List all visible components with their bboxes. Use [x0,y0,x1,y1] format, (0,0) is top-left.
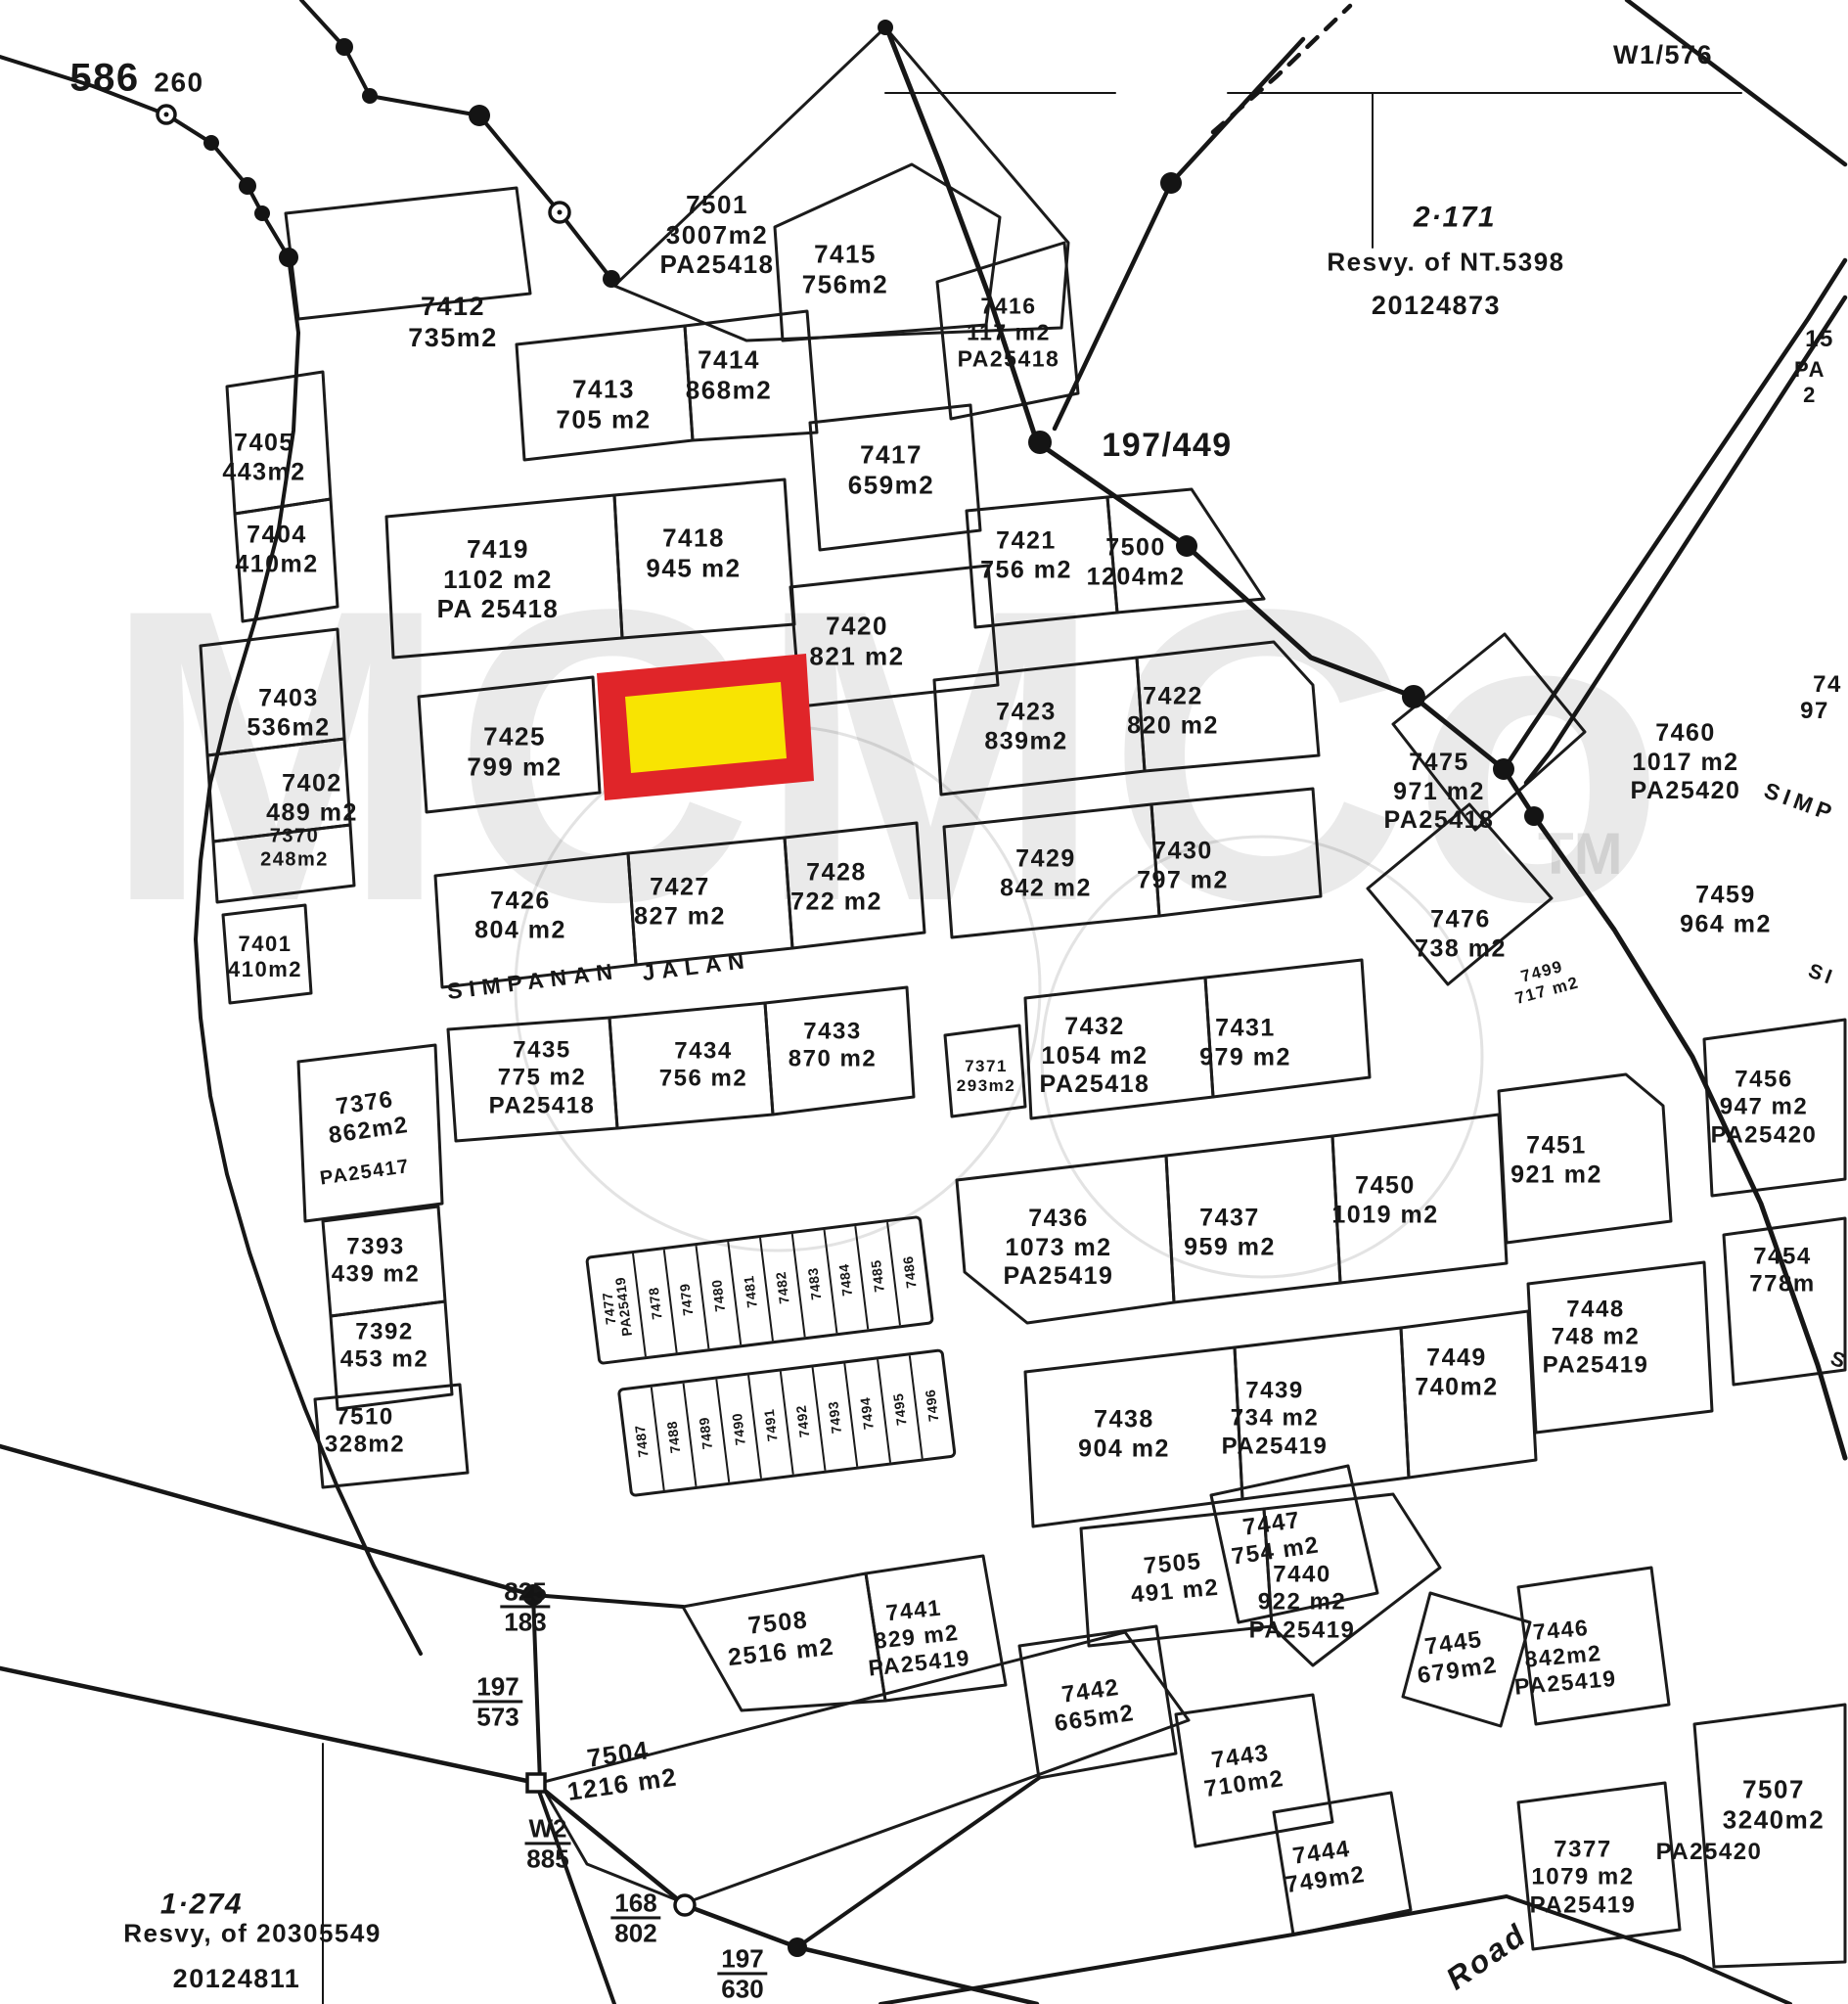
lot-7412: 7412 735m2 [408,292,498,354]
resvy2-area: 1·274 [160,1887,243,1921]
partial-pa2: PA 2 [1791,357,1829,408]
lot-7450: 7450 1019 m2 [1331,1172,1438,1230]
lot-7510: 7510 328m2 [325,1404,405,1460]
lot-7426: 7426 804 m2 [474,888,566,945]
lot-7418: 7418 945 m2 [646,523,741,582]
highlight-inner [625,682,787,773]
lot-7444: 7444 749m2 [1280,1834,1367,1900]
resvy-area: 2·171 [1414,200,1496,234]
lot-7414: 7414 868m2 [686,344,772,404]
strip-lot-block: 7477 PA254197478747974807481748274837484… [585,1215,951,1499]
lot-7429: 7429 842 m2 [1000,845,1092,903]
lot-7441: 7441 829 m2 PA25419 [862,1592,972,1682]
lot-7371: 7371 293m2 [957,1057,1015,1096]
lot-7370: 7370 248m2 [260,825,329,871]
lot-7460: 7460 1017 m2 PA25420 [1631,719,1741,806]
lot-7403: 7403 536m2 [247,685,330,743]
lot-7501: 7501 3007m2 PA25418 [660,190,775,280]
lot-7433: 7433 870 m2 [789,1019,877,1074]
lot-7437: 7437 959 m2 [1184,1205,1276,1262]
lot-7446: 7446 842m2 PA25419 [1509,1613,1617,1701]
lot-7427: 7427 827 m2 [634,874,726,932]
lot-7449: 7449 740m2 [1415,1344,1498,1402]
lot-7404: 7404 410m2 [235,522,318,579]
lot-7415: 7415 756m2 [802,239,888,298]
lot-7434: 7434 756 m2 [659,1038,747,1094]
lot-7439: 7439 734 m2 PA25419 [1222,1378,1329,1461]
lot-7376: 7376 862m2 [323,1084,410,1151]
lot-7432: 7432 1054 m2 PA25418 [1040,1013,1150,1100]
partial-74: 74 [1813,671,1842,699]
lot-7377: 7377 1079 m2 PA25419 [1530,1837,1637,1920]
lot-7454: 7454 778m [1749,1244,1815,1299]
ref-197-630: 197630 [717,1944,767,2002]
cadastral-map: MCMCo TM [0,0,1848,2004]
lot-7392: 7392 453 m2 [340,1319,428,1375]
lot-7401: 7401 410m2 [228,932,302,982]
lot-7428: 7428 722 m2 [790,859,882,917]
lot-7476: 7476 738 m2 [1415,906,1507,964]
lot-7422: 7422 820 m2 [1127,683,1219,741]
lot-7430: 7430 797 m2 [1137,838,1229,895]
lot-7393: 7393 439 m2 [332,1234,420,1290]
lot-7445: 7445 679m2 [1412,1624,1499,1691]
lot-7421: 7421 756 m2 [980,527,1072,585]
resvy2-num: 20124811 [173,1964,301,1995]
map-linework [0,0,1848,2004]
ref-825-183: 825183 [500,1577,550,1635]
lot-7443: 7443 710m2 [1198,1738,1285,1804]
lot-7442: 7442 665m2 [1049,1672,1136,1739]
lot-7402: 7402 489 m2 [266,770,358,828]
ref-197-449: 197/449 [1102,426,1232,465]
resvy-num: 20124873 [1372,291,1501,322]
lot-7431: 7431 979 m2 [1199,1015,1291,1072]
lot-7507-pa: PA25420 [1656,1839,1763,1866]
lot-7505: 7505 491 m2 [1128,1547,1221,1610]
resvy-line: Resvy. of NT.5398 [1327,248,1564,278]
lot-7425: 7425 799 m2 [467,721,562,781]
lot-7420: 7420 821 m2 [809,611,904,670]
lot-7500: 7500 1204m2 [1087,534,1186,592]
lot-7405: 7405 443m2 [222,430,305,487]
lot-7459: 7459 964 m2 [1680,882,1772,939]
ref-168-802: 168802 [610,1889,660,1946]
ref-586: 586 [69,55,139,101]
lot-7416: 7416 117 m2 PA25418 [958,293,1060,372]
lot-7456: 7456 947 m2 PA25420 [1711,1067,1818,1150]
lot-7507: 7507 3240m2 [1723,1774,1825,1834]
lot-7451: 7451 921 m2 [1510,1132,1602,1190]
lot-7435: 7435 775 m2 PA25418 [489,1037,596,1120]
lot-7419: 7419 1102 m2 PA 25418 [437,534,560,624]
lot-7448: 7448 748 m2 PA25419 [1543,1297,1649,1380]
partial-97: 97 [1800,698,1829,725]
lot-7440: 7440 922 m2 PA25419 [1249,1562,1356,1645]
resvy2-line: Resvy, of 20305549 [123,1919,382,1949]
lot-7508: 7508 2516 m2 [724,1604,836,1672]
lot-7417: 7417 659m2 [848,439,934,499]
ref-w1-576: W1/576 [1613,40,1713,71]
highlighted-lot [597,654,814,800]
lot-7475: 7475 971 m2 PA25418 [1384,749,1495,836]
ref-197-573: 197573 [473,1672,522,1730]
lot-7438: 7438 904 m2 [1078,1406,1170,1464]
partial-15: 15 [1805,326,1834,353]
ref-260: 260 [154,66,203,98]
lot-7436: 7436 1073 m2 PA25419 [1004,1205,1114,1292]
lot-7423: 7423 839m2 [984,699,1067,756]
lot-7413: 7413 705 m2 [556,374,651,433]
road-lines [0,0,1845,2004]
ref-w2-885: W2885 [525,1814,571,1872]
